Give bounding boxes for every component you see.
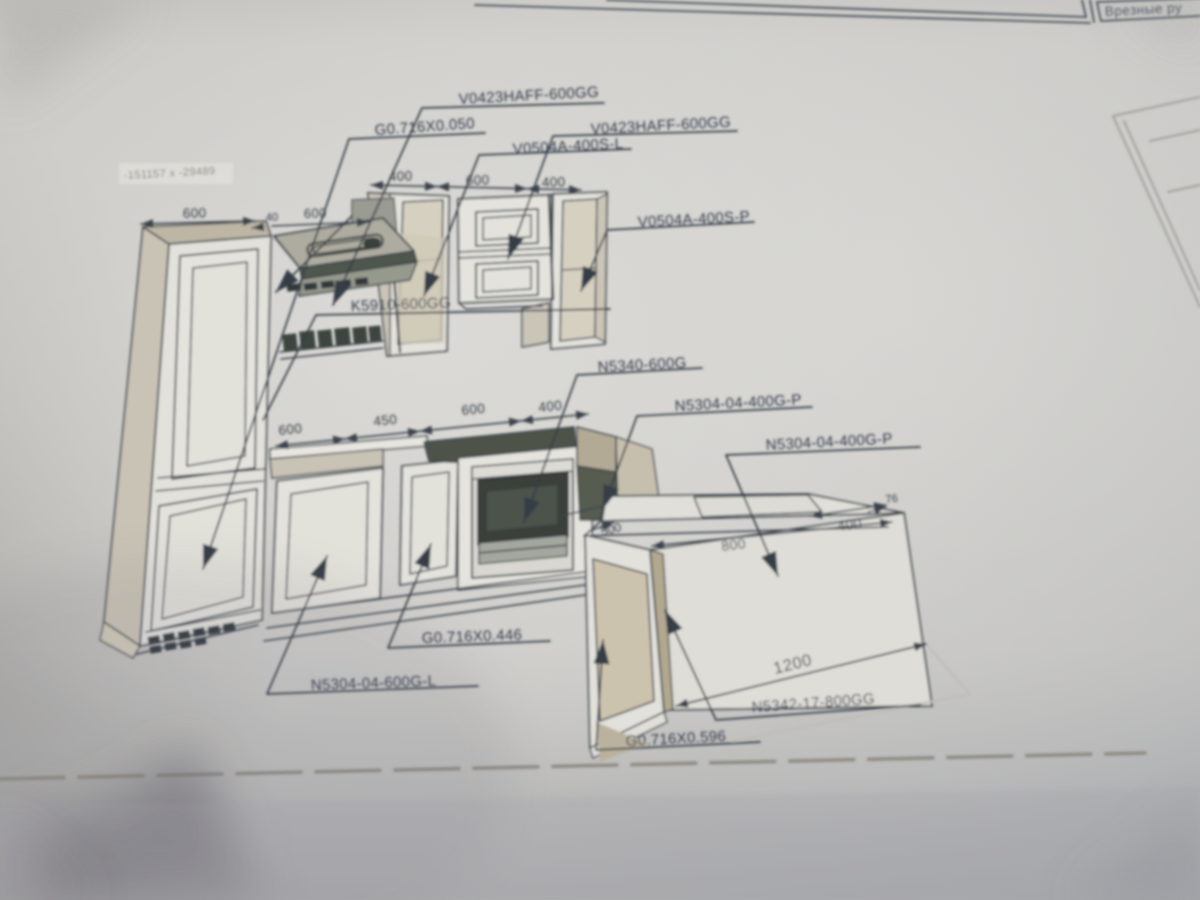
svg-text:600: 600 [461,401,486,418]
svg-text:600: 600 [278,421,303,438]
svg-text:40: 40 [266,212,279,224]
svg-text:500: 500 [599,520,623,539]
svg-text:450: 450 [373,412,398,429]
svg-text:400: 400 [836,515,862,534]
svg-text:400: 400 [538,398,563,415]
svg-text:76: 76 [885,493,899,506]
svg-text:800: 800 [720,535,746,554]
svg-text:400: 400 [542,174,566,190]
svg-text:V0504A-400S-L: V0504A-400S-L [512,135,623,158]
svg-text:400: 400 [389,168,413,184]
svg-text:600: 600 [183,205,207,221]
